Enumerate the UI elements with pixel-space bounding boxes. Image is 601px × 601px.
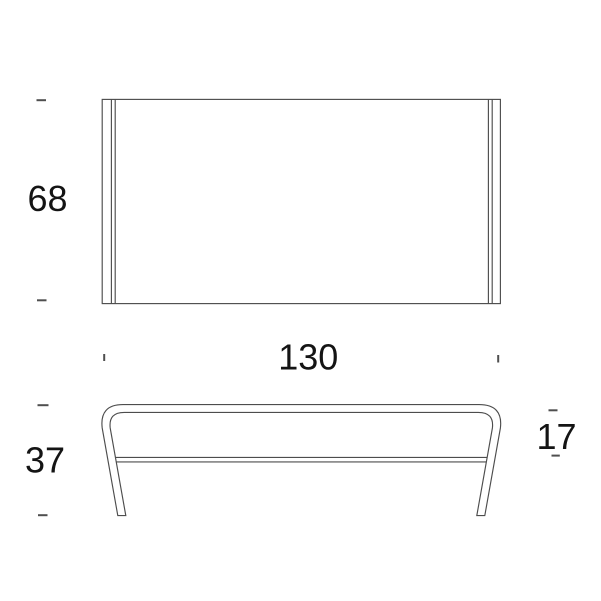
dimension-depth: 68 [27,100,67,300]
dimension-label-height: 37 [25,440,65,481]
dimension-label-width: 130 [278,337,338,378]
top-view [102,99,500,303]
furniture-dimension-drawing: 68 130 37 17 [0,0,601,601]
front-view [102,405,501,516]
dimension-height: 37 [25,405,65,515]
tube-frame-outline [102,405,501,516]
tabletop-outline [102,99,500,303]
dimension-label-side: 17 [536,416,576,457]
dimension-side: 17 [536,410,576,457]
dimension-width: 130 [104,337,498,378]
dimension-label-depth: 68 [27,178,67,219]
technical-drawing-svg: 68 130 37 17 [0,0,601,601]
